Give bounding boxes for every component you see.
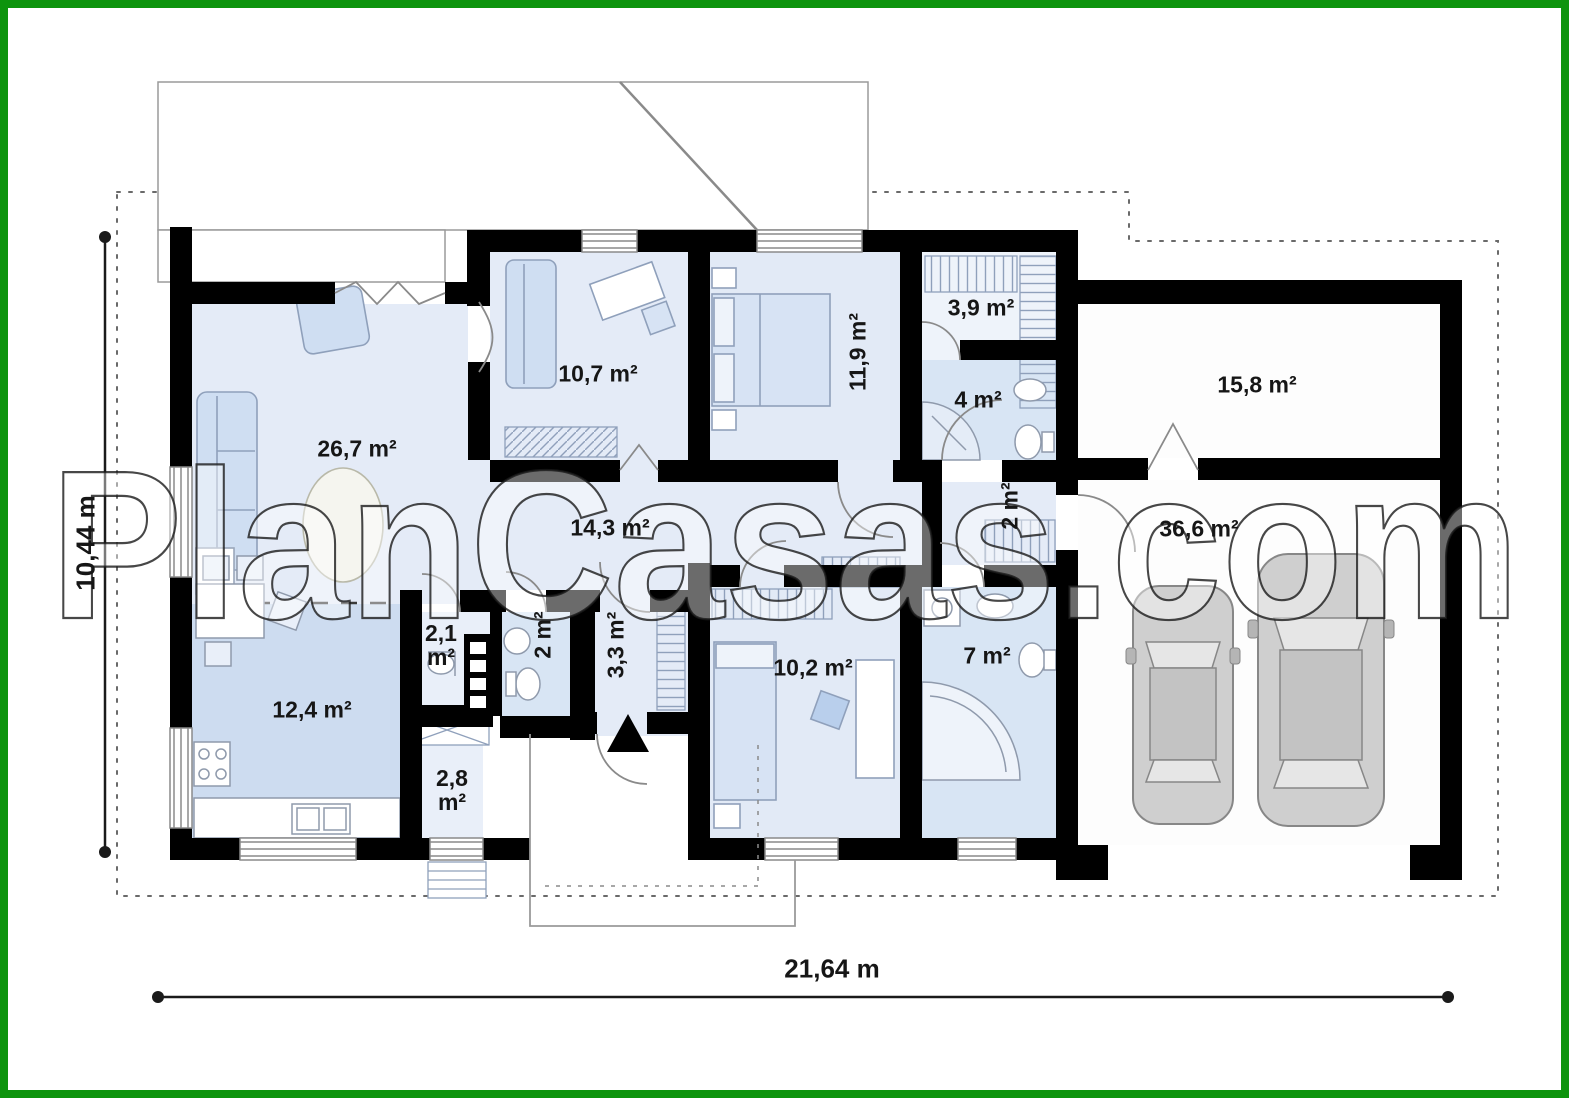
room-label-garage: 36,6 m² [1159,516,1238,543]
room-label-bathroom-top: 4 m² [954,387,1001,414]
dimension-line-horizontal [152,991,1454,1003]
outdoor-steps [428,862,486,898]
room-label-pantry: 2,8 m² [424,766,480,814]
room-label-office: 10,7 m² [558,361,637,388]
room-label-wardrobe: 3,9 m² [948,295,1014,322]
room-label-vestibule: 3,3 m² [603,612,630,678]
dimension-label-height: 10,44 m [71,495,102,590]
room-label-storage: 15,8 m² [1217,372,1296,399]
floor-plan-image: PlanCasas.com 26,7 m² 10,7 m² 11,9 m² 3,… [0,0,1569,1098]
room-label-wc: 2,1 m² [413,621,469,669]
room-label-bathroom-bottom: 7 m² [963,643,1010,670]
room-label-bathroom-small: 2 m² [530,611,557,658]
room-label-bedroom-top: 11,9 m² [845,313,872,391]
room-label-kitchen: 12,4 m² [272,697,351,724]
watermark-text: PlanCasas.com [50,426,1520,663]
floor-plan-drawing: PlanCasas.com [0,0,1569,1098]
dimension-label-width: 21,64 m [784,954,879,985]
room-label-garage-lobby: 2 m² [997,482,1024,529]
room-label-bedroom-bottom: 10,2 m² [773,655,852,682]
room-label-living: 26,7 m² [317,436,396,463]
room-label-hallway: 14,3 m² [570,515,649,542]
